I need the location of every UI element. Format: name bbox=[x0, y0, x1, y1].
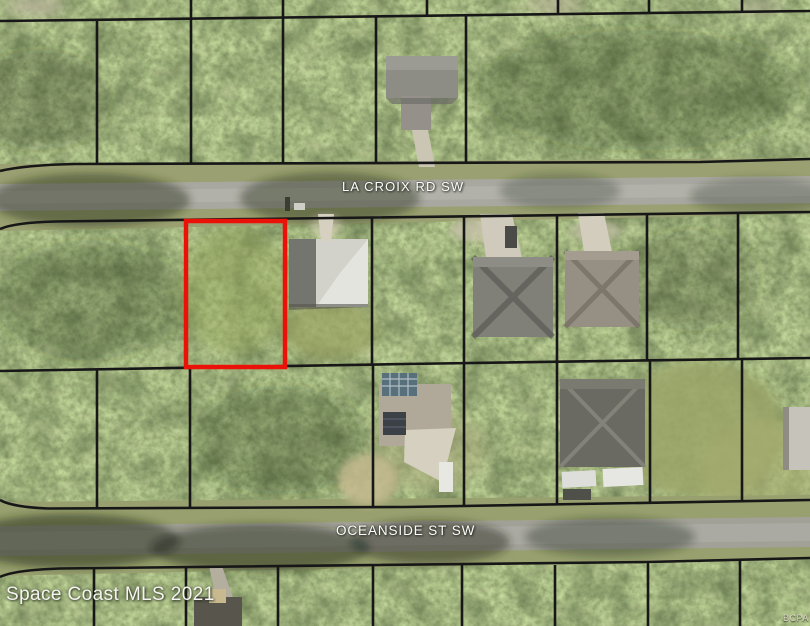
mls-watermark: Space Coast MLS 2021 bbox=[6, 584, 215, 606]
mls-aerial-photo: LA CROIX RD SW OCEANSIDE ST SW Space Coa… bbox=[0, 0, 810, 626]
road-label-la-croix: LA CROIX RD SW bbox=[342, 179, 464, 194]
house-roof-edge bbox=[783, 407, 810, 470]
appraiser-attribution: BCPA bbox=[783, 613, 809, 623]
road-label-oceanside: OCEANSIDE ST SW bbox=[336, 523, 475, 538]
